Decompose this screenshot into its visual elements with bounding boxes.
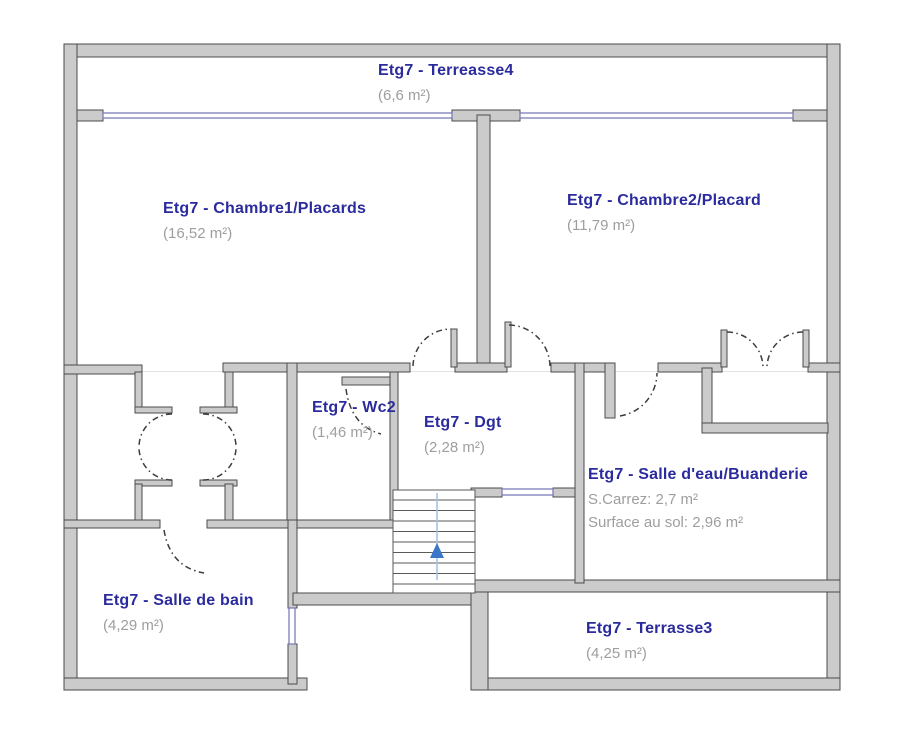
- room-label-terrasse3: Etg7 - Terrasse3 (4,25 m²): [586, 620, 713, 665]
- wall-dgt-window-left: [471, 488, 502, 497]
- staircase: [393, 490, 475, 593]
- room-label-salle-eau: Etg7 - Salle d'eau/Buanderie S.Carrez: 2…: [588, 466, 808, 534]
- window-salle-de-bain: [289, 608, 295, 644]
- wall-main-f: [808, 363, 840, 372]
- jamb-chambre2-door: [505, 322, 511, 367]
- room-area-carrez: S.Carrez: 2,7 m²: [588, 488, 808, 511]
- room-area: (4,25 m²): [586, 642, 713, 665]
- door-arc-salle-de-bain: [164, 530, 204, 573]
- wall-terrace4-pier-right: [793, 110, 827, 121]
- wall-outer-bottom-left: [64, 678, 307, 690]
- wall-closet1-lower: [135, 484, 142, 522]
- room-name: Etg7 - Chambre2/Placard: [567, 192, 761, 210]
- wall-placard-recess-bottom: [702, 423, 828, 433]
- room-name: Etg7 - Salle d'eau/Buanderie: [588, 466, 808, 484]
- room-area: (4,29 m²): [103, 614, 254, 637]
- room-area-sol: Surface au sol: 2,96 m²: [588, 511, 808, 534]
- room-name: Etg7 - Dgt: [424, 414, 502, 432]
- window-terrace4-left: [103, 113, 452, 118]
- wall-chambre-separator: [477, 115, 490, 372]
- room-label-dgt: Etg7 - Dgt (2,28 m²): [424, 414, 502, 459]
- door-arc-closet1-top: [139, 414, 172, 447]
- wall-main-a: [64, 365, 142, 374]
- door-arc-chambre1: [413, 329, 451, 366]
- room-label-salle-de-bain: Etg7 - Salle de bain (4,29 m²): [103, 592, 254, 637]
- room-name: Etg7 - Chambre1/Placards: [163, 200, 366, 218]
- door-arc-closet2-bottom: [203, 449, 236, 480]
- room-name: Etg7 - Terrasse3: [586, 620, 713, 638]
- wall-closet2-upper: [225, 372, 233, 409]
- door-arc-placard-left: [727, 332, 763, 367]
- wall-terrasse3-left: [471, 580, 488, 690]
- wall-closet1-upper: [135, 372, 142, 409]
- door-arc-closet1-bottom: [139, 449, 172, 480]
- room-name: Etg7 - Salle de bain: [103, 592, 254, 610]
- wall-terrace4-pier-left: [77, 110, 103, 121]
- wall-closet2-lower: [225, 484, 233, 522]
- jamb-placard-left: [721, 330, 727, 367]
- room-name: Etg7 - Wc2: [312, 399, 396, 417]
- room-label-chambre2: Etg7 - Chambre2/Placard (11,79 m²): [567, 192, 761, 237]
- jamb-salle-eau-door: [605, 363, 615, 418]
- wall-salle-eau-west: [575, 363, 584, 583]
- room-area: (16,52 m²): [163, 222, 366, 245]
- door-arc-salle-eau: [620, 373, 657, 416]
- room-area: (2,28 m²): [424, 436, 502, 459]
- wall-stairs-bottom: [293, 593, 478, 605]
- wall-outer-top: [64, 44, 840, 57]
- door-arc-placard-right: [767, 332, 803, 367]
- jamb-chambre1-door: [451, 329, 457, 367]
- wall-main-b: [223, 363, 410, 372]
- wall-main-c: [455, 363, 507, 372]
- room-area: (1,46 m²): [312, 421, 396, 444]
- jamb-wc2-door: [342, 377, 390, 385]
- wall-sdb-top-right: [207, 520, 397, 528]
- stub-closet1-top: [135, 407, 172, 413]
- door-arc-closet2-top: [203, 414, 236, 447]
- window-dgt: [502, 489, 553, 495]
- door-arc-chambre2: [509, 325, 550, 366]
- room-area: (6,6 m²): [378, 84, 514, 107]
- room-name: Etg7 - Terreasse4: [378, 62, 514, 80]
- wall-outer-bottom-right: [471, 678, 840, 690]
- wall-closets-wc2: [287, 363, 297, 528]
- wall-placard-recess-left: [702, 368, 712, 432]
- room-label-chambre1: Etg7 - Chambre1/Placards (16,52 m²): [163, 200, 366, 245]
- room-label-wc2: Etg7 - Wc2 (1,46 m²): [312, 399, 396, 444]
- floor-plan-canvas: Etg7 - Terreasse4 (6,6 m²) Etg7 - Chambr…: [0, 0, 899, 732]
- wall-salle-eau-bottom: [471, 580, 840, 592]
- wall-sdb-east-lower: [288, 644, 297, 684]
- wall-sdb-top-left: [64, 520, 160, 528]
- room-label-terreasse4: Etg7 - Terreasse4 (6,6 m²): [378, 62, 514, 107]
- jamb-placard-right: [803, 330, 809, 367]
- room-area: (11,79 m²): [567, 214, 761, 237]
- window-terrace4-right: [520, 113, 793, 118]
- stub-closet2-top: [200, 407, 237, 413]
